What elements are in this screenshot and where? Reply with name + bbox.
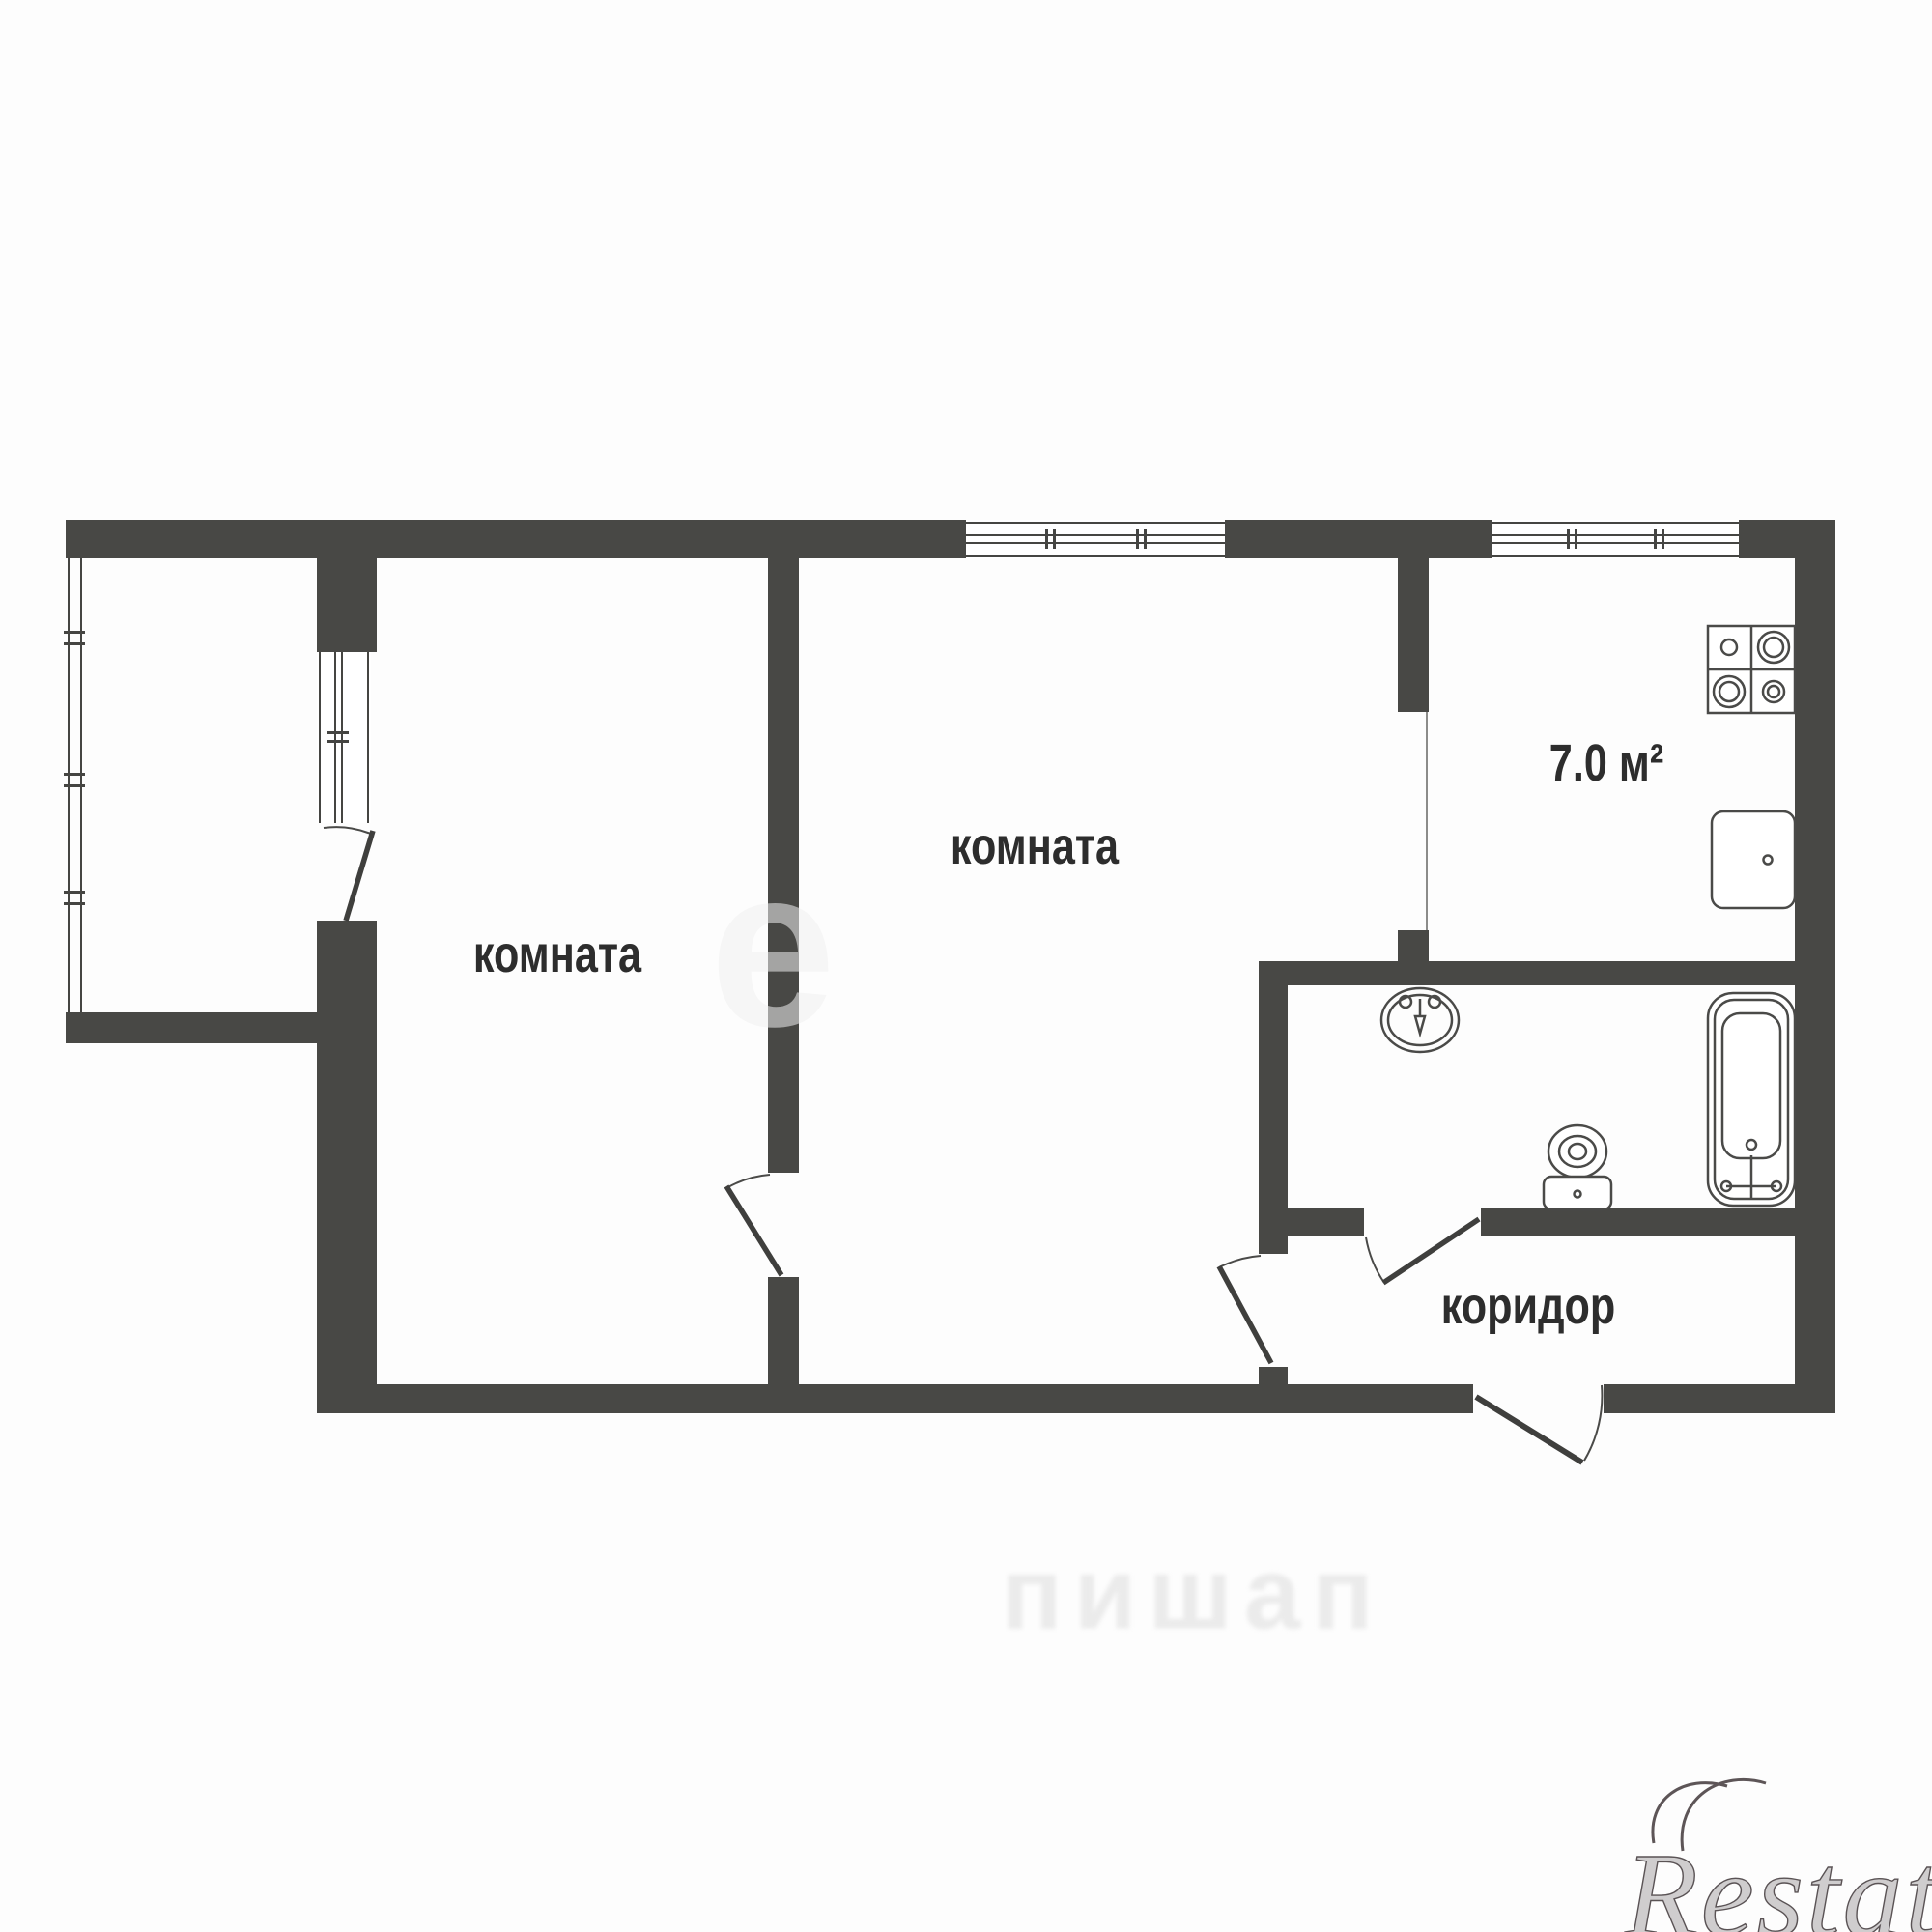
balcony-door (324, 827, 373, 921)
watermark-brand: Restate (1625, 1835, 1932, 1932)
left-room-door (726, 1175, 781, 1275)
stove-icon (1708, 626, 1795, 713)
kitchen-area-label: 7.0 м² (1549, 737, 1663, 789)
kitchen-sink-icon (1712, 811, 1795, 908)
room-left-label: комната (473, 928, 641, 980)
entrance-door (1476, 1385, 1602, 1463)
wash-basin-icon (1381, 988, 1459, 1052)
bathroom-door (1366, 1219, 1479, 1283)
room-main-label: комната (951, 820, 1119, 872)
toilet-icon (1544, 1125, 1611, 1209)
corridor-label: коридор (1441, 1280, 1616, 1332)
main-room-door (1219, 1256, 1271, 1363)
bathtub-icon (1708, 993, 1795, 1206)
watermark-bottom-blurred: пишап (1001, 1544, 1384, 1645)
watermark-center-glyph: е (710, 834, 837, 1061)
floor-plan: комната комната 7.0 м² коридор е пишап R… (0, 0, 1932, 1932)
